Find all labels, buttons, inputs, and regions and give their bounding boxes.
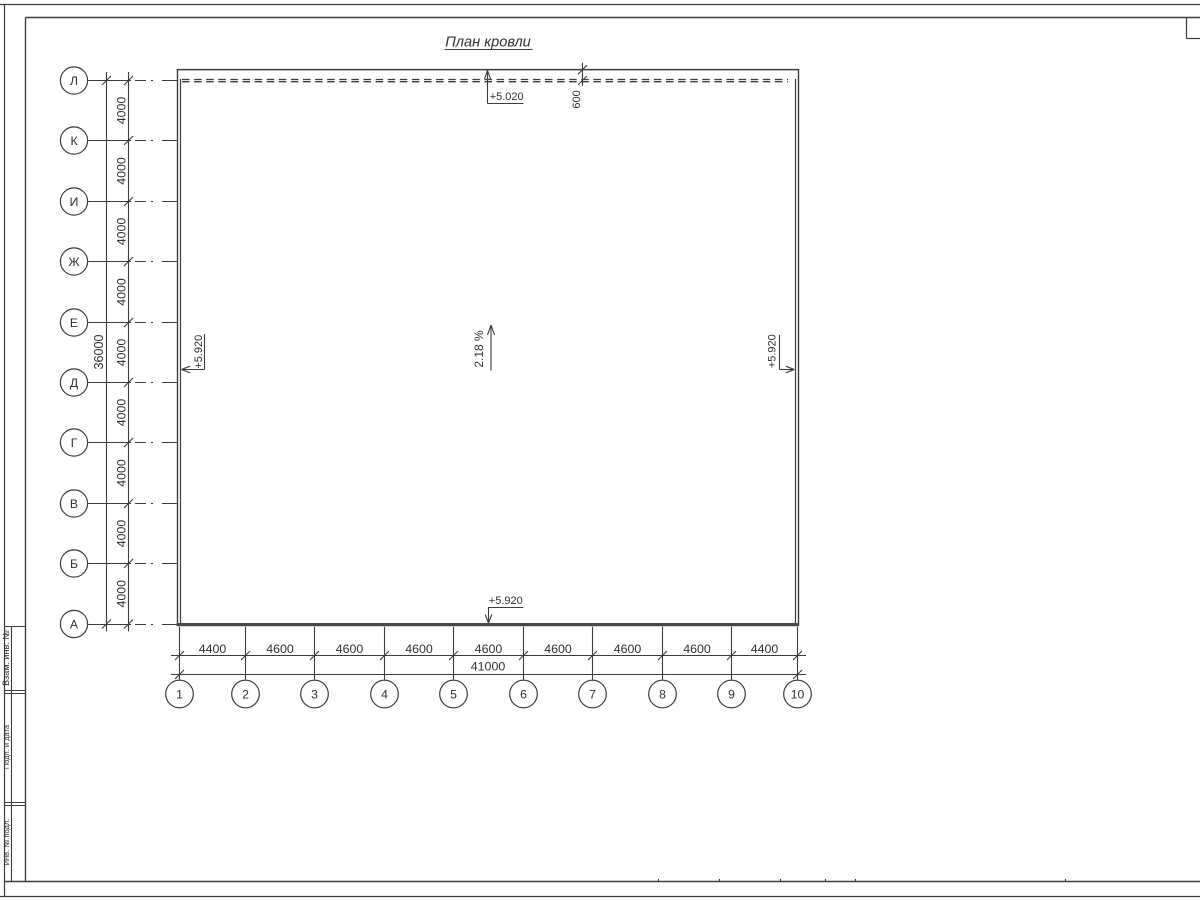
svg-text:4400: 4400 [751, 642, 779, 656]
svg-text:Ж: Ж [68, 255, 80, 269]
svg-text:41000: 41000 [471, 659, 506, 673]
svg-text:Инв. № подл.: Инв. № подл. [2, 819, 11, 866]
svg-text:+5.920: +5.920 [766, 334, 778, 368]
svg-text:4600: 4600 [475, 642, 503, 656]
svg-text:4600: 4600 [683, 642, 711, 656]
svg-text:4000: 4000 [114, 218, 128, 246]
svg-text:Б: Б [70, 557, 78, 571]
svg-text:8: 8 [659, 687, 666, 701]
svg-text:4600: 4600 [405, 642, 433, 656]
svg-text:Подп. и дата: Подп. и дата [2, 724, 11, 769]
svg-text:А: А [70, 617, 79, 631]
svg-text:План кровли: План кровли [445, 34, 531, 50]
svg-text:4000: 4000 [114, 278, 128, 306]
svg-text:4000: 4000 [114, 580, 128, 608]
svg-text:Взам. инв. №: Взам. инв. № [1, 630, 11, 686]
svg-text:К: К [70, 134, 78, 148]
svg-text:10: 10 [791, 687, 805, 701]
svg-text:4000: 4000 [114, 459, 128, 487]
svg-text:4000: 4000 [114, 520, 128, 548]
svg-text:3: 3 [311, 687, 318, 701]
svg-text:Д: Д [70, 376, 79, 390]
svg-text:1: 1 [176, 687, 183, 701]
svg-text:6: 6 [520, 687, 527, 701]
svg-text:4: 4 [381, 687, 388, 701]
svg-text:Л: Л [70, 74, 78, 88]
svg-text:5: 5 [450, 687, 457, 701]
svg-text:4600: 4600 [544, 642, 572, 656]
svg-text:2.18 %: 2.18 % [472, 330, 486, 368]
svg-text:+5.920: +5.920 [489, 595, 523, 607]
svg-text:4000: 4000 [114, 97, 128, 125]
svg-text:7: 7 [589, 687, 596, 701]
svg-text:9: 9 [728, 687, 735, 701]
svg-text:4000: 4000 [114, 157, 128, 185]
svg-text:4600: 4600 [266, 642, 294, 656]
svg-text:Е: Е [70, 316, 78, 330]
svg-text:+5.020: +5.020 [490, 91, 524, 103]
svg-text:В: В [70, 497, 78, 511]
svg-text:И: И [70, 195, 79, 209]
svg-text:+5.920: +5.920 [193, 335, 205, 369]
svg-text:4600: 4600 [336, 642, 364, 656]
svg-text:2: 2 [242, 687, 249, 701]
svg-text:4000: 4000 [114, 399, 128, 427]
svg-text:4000: 4000 [114, 339, 128, 367]
svg-text:Г: Г [71, 436, 78, 450]
svg-text:36000: 36000 [92, 334, 106, 369]
svg-text:4400: 4400 [199, 642, 227, 656]
svg-text:600: 600 [571, 90, 583, 108]
svg-text:4600: 4600 [614, 642, 642, 656]
